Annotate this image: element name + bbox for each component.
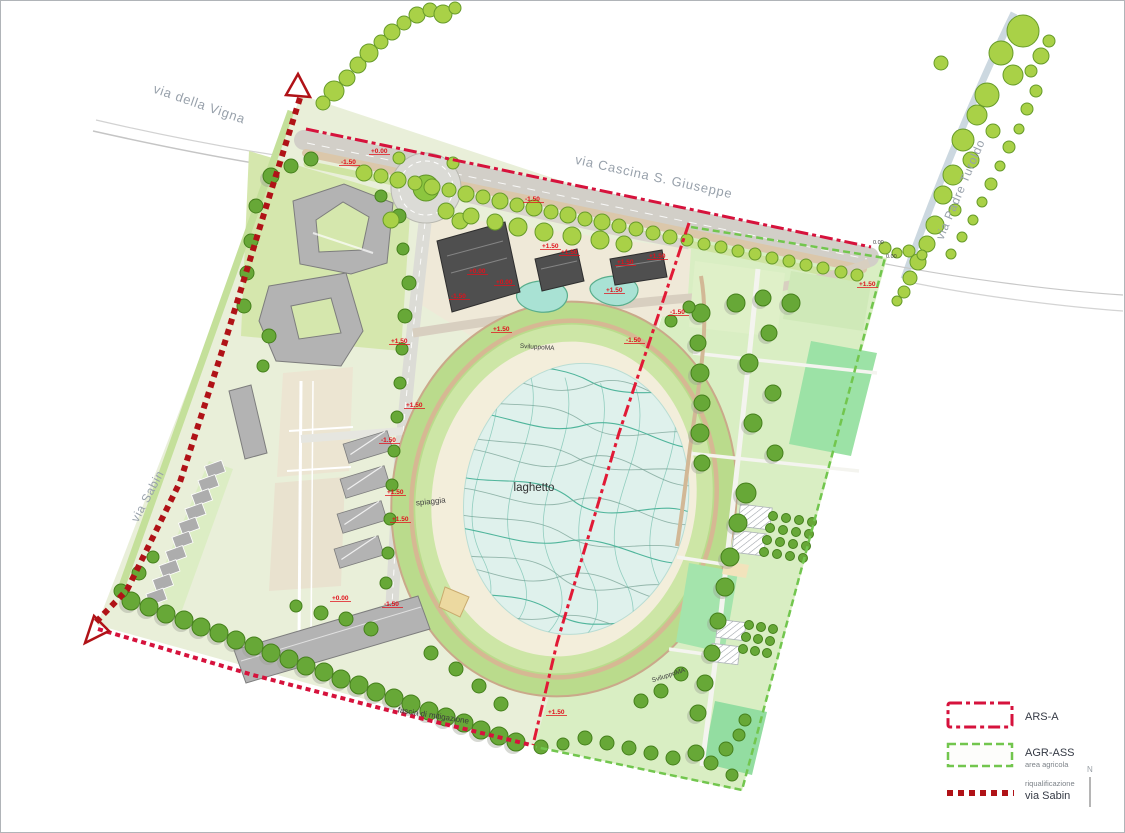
tree-icon <box>463 208 479 224</box>
tree-icon <box>397 16 411 30</box>
tree-icon <box>290 600 302 612</box>
boundary-arrow-icon <box>286 74 310 97</box>
elevation-mark: 0.00 <box>886 254 897 260</box>
tree-icon <box>968 215 978 225</box>
tree-icon <box>449 2 461 14</box>
elevation-mark: +1.50 <box>561 249 578 256</box>
tree-icon <box>760 548 769 557</box>
tree-icon <box>769 625 778 634</box>
ars-a-symbol-icon <box>948 703 1012 727</box>
tree-icon <box>316 96 330 110</box>
tree-icon <box>388 445 400 457</box>
map-label: laghetto <box>514 482 555 494</box>
tree-icon <box>402 276 416 290</box>
tree-icon <box>1025 65 1037 77</box>
tree-icon <box>773 550 782 559</box>
tree-icon <box>729 514 747 532</box>
tree-icon <box>898 286 910 298</box>
elevation-mark: -1.50 <box>381 437 396 444</box>
tree-icon <box>691 364 709 382</box>
tree-icon <box>763 649 772 658</box>
tree-icon <box>736 483 756 503</box>
tree-icon <box>892 296 902 306</box>
tree-icon <box>510 198 524 212</box>
tree-icon <box>694 455 710 471</box>
tree-icon <box>769 512 778 521</box>
tree-icon <box>665 315 677 327</box>
tree-icon <box>663 230 677 244</box>
tree-icon <box>600 736 614 750</box>
tree-icon <box>487 214 503 230</box>
tree-icon <box>767 445 783 461</box>
legend-agr-ass-sublabel: area agricola <box>1025 760 1069 769</box>
tree-icon <box>1014 124 1024 134</box>
tree-icon <box>492 193 508 209</box>
elevation-mark: 0.00 <box>873 240 884 246</box>
tree-icon <box>751 647 760 656</box>
tree-icon <box>408 176 422 190</box>
tree-icon <box>364 622 378 636</box>
tree-icon <box>975 83 999 107</box>
elevation-mark: -1.50 <box>525 196 540 203</box>
masterplan-drawing: via della Vigna via Cascina S. Giuseppe … <box>0 0 1125 833</box>
tree-icon <box>1021 103 1033 115</box>
tree-icon <box>690 335 706 351</box>
tree-icon <box>442 183 456 197</box>
tree-icon <box>749 248 761 260</box>
tree-icon <box>1043 35 1055 47</box>
tree-icon <box>903 271 917 285</box>
tree-icon <box>698 238 710 250</box>
tree-icon <box>985 178 997 190</box>
tree-icon <box>800 259 812 271</box>
tree-icon <box>424 179 440 195</box>
tree-icon <box>934 56 948 70</box>
tree-icon <box>262 329 276 343</box>
tree-icon <box>739 645 748 654</box>
tree-icon <box>382 547 394 559</box>
tree-icon <box>727 294 745 312</box>
tree-icon <box>390 172 406 188</box>
tree-icon <box>795 516 804 525</box>
tree-icon <box>851 269 863 281</box>
tree-icon <box>1007 15 1039 47</box>
tree-icon <box>578 212 592 226</box>
tree-icon <box>297 657 315 675</box>
tree-icon <box>629 222 643 236</box>
tree-icon <box>732 245 744 257</box>
elevation-mark: -1.50 <box>670 309 685 316</box>
tree-icon <box>339 70 355 86</box>
tree-icon <box>704 756 718 770</box>
elevation-mark: -1.50 <box>451 293 466 300</box>
tree-icon <box>394 377 406 389</box>
tree-icon <box>458 186 474 202</box>
elevation-mark: +1.50 <box>617 259 634 266</box>
tree-icon <box>710 613 726 629</box>
elevation-mark: +1.50 <box>493 326 510 333</box>
tree-icon <box>776 538 785 547</box>
elevation-mark: +0.00 <box>371 148 388 155</box>
tree-icon <box>946 249 956 259</box>
tree-icon <box>786 552 795 561</box>
tree-icon <box>716 578 734 596</box>
legend: ARS-A AGR-ASS area agricola riqualificaz… <box>947 703 1075 802</box>
tree-icon <box>557 738 569 750</box>
tree-icon <box>739 714 751 726</box>
legend-sabin-label: via Sabin <box>1025 790 1070 802</box>
tree-icon <box>766 252 778 264</box>
tree-icon <box>977 197 987 207</box>
tree-icon <box>754 635 763 644</box>
tree-icon <box>367 683 385 701</box>
tree-icon <box>147 551 159 563</box>
north-indicator: N <box>1087 765 1093 807</box>
tree-icon <box>1033 48 1049 64</box>
elevation-mark: +1.50 <box>406 402 423 409</box>
elevation-mark: -1.50 <box>626 337 641 344</box>
tree-icon <box>398 309 412 323</box>
elevation-mark: +1.50 <box>392 516 409 523</box>
tree-icon <box>744 414 762 432</box>
tree-icon <box>612 219 626 233</box>
tree-icon <box>757 623 766 632</box>
tree-icon <box>1003 65 1023 85</box>
elevation-mark: -1.50 <box>341 159 356 166</box>
tree-icon <box>766 637 775 646</box>
tree-icon <box>438 203 454 219</box>
tree-icon <box>733 729 745 741</box>
tree-icon <box>903 245 915 257</box>
tree-icon <box>314 606 328 620</box>
tree-icon <box>1003 141 1015 153</box>
tree-icon <box>782 294 800 312</box>
tree-icon <box>783 255 795 267</box>
tree-icon <box>578 731 592 745</box>
legend-agr-ass-label: AGR-ASS <box>1025 747 1075 759</box>
tree-icon <box>690 705 706 721</box>
tree-icon <box>646 226 660 240</box>
elevation-mark: +1.50 <box>606 287 623 294</box>
tree-icon <box>397 243 409 255</box>
tree-icon <box>986 124 1000 138</box>
tree-icon <box>535 223 553 241</box>
tree-icon <box>1030 85 1042 97</box>
tree-icon <box>616 236 632 252</box>
tree-icon <box>726 769 738 781</box>
tree-icon <box>644 746 658 760</box>
street-label-via-della-vigna: via della Vigna <box>151 81 247 127</box>
tree-icon <box>594 214 610 230</box>
tree-icon <box>257 360 269 372</box>
elevation-mark: -1.50 <box>384 601 399 608</box>
tree-icon <box>509 218 527 236</box>
tree-icon <box>424 646 438 660</box>
tree-icon <box>745 621 754 630</box>
tree-icon <box>374 169 388 183</box>
agr-ass-symbol-icon <box>948 744 1012 766</box>
tree-icon <box>380 577 392 589</box>
tree-icon <box>835 266 847 278</box>
tree-icon <box>719 742 733 756</box>
tree-icon <box>332 670 350 688</box>
tree-icon <box>761 325 777 341</box>
elevation-mark: +0.00 <box>469 268 486 275</box>
tree-icon <box>957 232 967 242</box>
tree-icon <box>721 548 739 566</box>
tree-icon <box>654 684 668 698</box>
elevation-mark: +1.50 <box>391 338 408 345</box>
tree-icon <box>766 524 775 533</box>
tree-icon <box>192 618 210 636</box>
tree-icon <box>449 662 463 676</box>
tree-icon <box>715 241 727 253</box>
tree-icon <box>763 536 772 545</box>
tree-icon <box>622 741 636 755</box>
tree-icon <box>393 152 405 164</box>
tree-icon <box>284 159 298 173</box>
tree-icon <box>391 411 403 423</box>
tree-icon <box>262 644 280 662</box>
elevation-mark: +1.50 <box>548 709 565 716</box>
elevation-mark: +0.00 <box>332 595 349 602</box>
tree-icon <box>782 514 791 523</box>
tree-icon <box>375 190 387 202</box>
elevation-mark: +1.50 <box>387 489 404 496</box>
tree-icon <box>472 679 486 693</box>
tree-icon <box>989 41 1013 65</box>
tree-icon <box>157 605 175 623</box>
tree-icon <box>634 694 648 708</box>
tree-icon <box>789 540 798 549</box>
elevation-mark: +0.00 <box>496 279 513 286</box>
elevation-mark: +1.50 <box>649 253 666 260</box>
tree-icon <box>755 290 771 306</box>
tree-icon <box>560 207 576 223</box>
tree-icon <box>356 165 372 181</box>
tree-icon <box>704 645 720 661</box>
tree-icon <box>476 190 490 204</box>
tree-icon <box>995 161 1005 171</box>
legend-ars-a-label: ARS-A <box>1025 711 1059 723</box>
tree-icon <box>304 152 318 166</box>
tree-icon <box>765 385 781 401</box>
tree-icon <box>591 231 609 249</box>
tree-icon <box>227 631 245 649</box>
site-plan-svg: via della Vigna via Cascina S. Giuseppe … <box>1 1 1125 833</box>
tree-icon <box>967 105 987 125</box>
tree-icon <box>666 751 680 765</box>
tree-icon <box>383 212 399 228</box>
tree-icon <box>817 262 829 274</box>
tree-icon <box>249 199 263 213</box>
tree-icon <box>691 424 709 442</box>
legend-sabin-sublabel: riqualificazione <box>1025 779 1075 788</box>
tree-icon <box>740 354 758 372</box>
elevation-mark: +1.50 <box>859 281 876 288</box>
tree-icon <box>779 526 788 535</box>
tree-icon <box>742 633 751 642</box>
tree-icon <box>694 395 710 411</box>
tree-icon <box>917 250 927 260</box>
tree-icon <box>339 612 353 626</box>
tree-icon <box>792 528 801 537</box>
north-label: N <box>1087 765 1093 774</box>
tree-icon <box>697 675 713 691</box>
tree-icon <box>494 697 508 711</box>
tree-icon <box>688 745 704 761</box>
tree-icon <box>563 227 581 245</box>
tree-icon <box>544 205 558 219</box>
elevation-mark: +1.50 <box>542 243 559 250</box>
